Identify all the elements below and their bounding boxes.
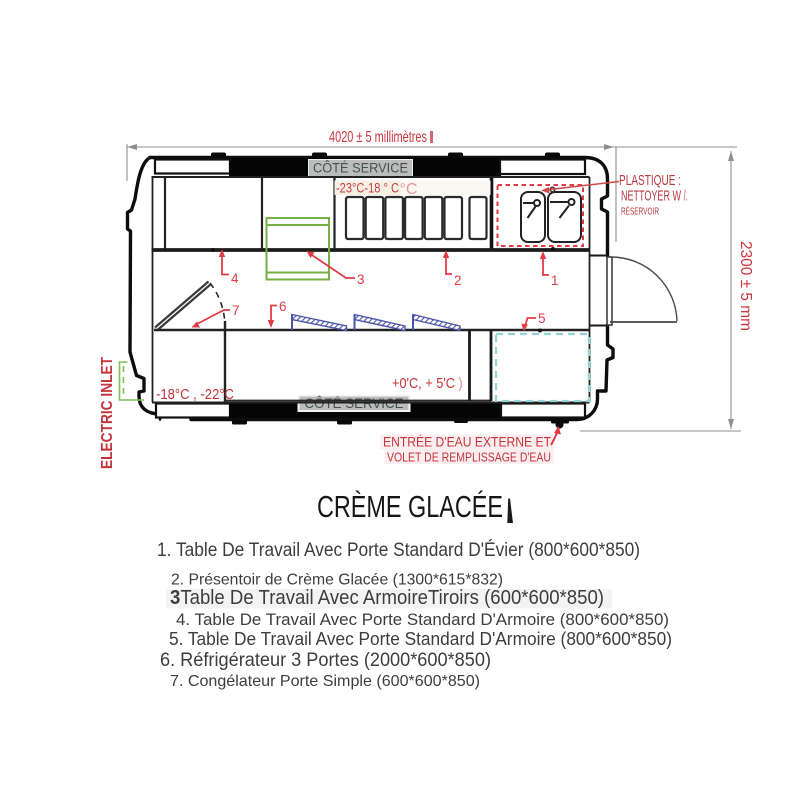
svg-text:RÉSERVOIR: RÉSERVOIR (621, 205, 659, 218)
svg-text:7. Congélateur Porte Simple (6: 7. Congélateur Porte Simple (600*600*850… (170, 673, 480, 690)
svg-text:ELECTRIC INLET: ELECTRIC INLET (99, 357, 116, 469)
svg-text:PLASTIQUE :: PLASTIQUE : (619, 173, 681, 189)
svg-text:2300 ± 5 mm: 2300 ± 5 mm (737, 241, 754, 331)
svg-text:1. Table De Travail Avec Porte: 1. Table De Travail Avec Porte Standard … (157, 538, 640, 561)
svg-text:NETTOYER W l.: NETTOYER W l. (621, 189, 688, 205)
svg-text:): ) (458, 375, 463, 392)
svg-text:°C: °C (400, 181, 418, 198)
svg-text:CRÈME GLACÉE: CRÈME GLACÉE (317, 489, 503, 524)
svg-text:7: 7 (232, 303, 240, 318)
svg-text:+0'C, + 5'C: +0'C, + 5'C (392, 375, 455, 392)
svg-text:CÔTÉ SERVICE: CÔTÉ SERVICE (313, 161, 408, 176)
svg-text:5: 5 (538, 311, 546, 326)
svg-text:VOLET DE REMPLISSAGE D'EAU: VOLET DE REMPLISSAGE D'EAU (387, 451, 551, 465)
svg-text:3Table De Travail Avec Armoire: 3Table De Travail Avec ArmoireTiroirs (6… (170, 587, 604, 609)
svg-text:6. Réfrigérateur 3 Portes (200: 6. Réfrigérateur 3 Portes (2000*600*850) (160, 649, 491, 671)
svg-text:4020 ± 5 millimètres: 4020 ± 5 millimètres (329, 129, 427, 146)
svg-text:4. Table De Travail Avec Porte: 4. Table De Travail Avec Porte Standard … (176, 610, 669, 629)
svg-text:4: 4 (231, 271, 239, 286)
svg-text:6: 6 (279, 299, 287, 314)
svg-text:2. Présentoir de Crème Glacée: 2. Présentoir de Crème Glacée (1300*615*… (171, 572, 503, 589)
svg-text:2: 2 (454, 273, 462, 288)
svg-text:3: 3 (357, 272, 365, 287)
svg-text:1: 1 (551, 273, 559, 288)
svg-text:ENTRÉE D'EAU EXTERNE ET: ENTRÉE D'EAU EXTERNE ET (383, 434, 551, 450)
svg-text:-18°C , -22°C: -18°C , -22°C (156, 386, 234, 403)
svg-text:5. Table De Travail Avec Porte: 5. Table De Travail Avec Porte Standard … (169, 629, 672, 649)
svg-text:-23°C-18 ° C: -23°C-18 ° C (336, 181, 399, 196)
